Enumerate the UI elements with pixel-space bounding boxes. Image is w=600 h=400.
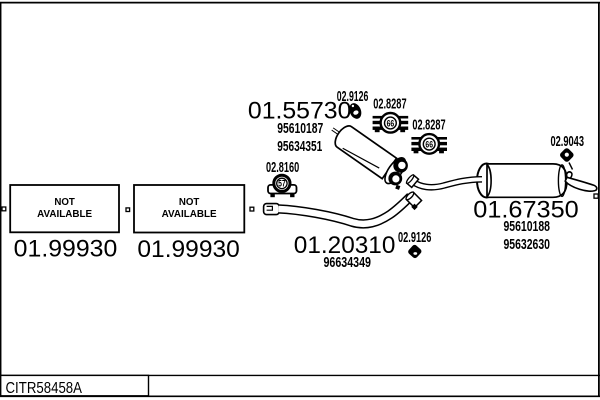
svg-text:02.9126: 02.9126	[337, 88, 369, 105]
svg-text:02.8287: 02.8287	[373, 96, 406, 113]
svg-text:NOT: NOT	[54, 197, 75, 208]
svg-text:57: 57	[278, 179, 286, 189]
svg-text:CITR58458A: CITR58458A	[6, 380, 83, 397]
svg-text:66: 66	[387, 118, 395, 128]
svg-text:96634349: 96634349	[324, 254, 372, 271]
svg-text:66: 66	[425, 139, 433, 149]
svg-text:95610187: 95610187	[277, 120, 323, 137]
svg-text:AVAILABLE: AVAILABLE	[162, 209, 217, 220]
svg-text:95632630: 95632630	[504, 236, 551, 253]
svg-text:AVAILABLE: AVAILABLE	[37, 209, 92, 220]
svg-text:95610188: 95610188	[504, 218, 551, 235]
svg-text:01.99930: 01.99930	[137, 236, 239, 263]
svg-text:02.8287: 02.8287	[412, 117, 445, 134]
svg-text:02.9126: 02.9126	[398, 229, 431, 246]
svg-text:01.99930: 01.99930	[14, 235, 118, 262]
svg-text:02.9043: 02.9043	[551, 133, 585, 150]
svg-text:02.8160: 02.8160	[266, 159, 299, 176]
svg-text:NOT: NOT	[179, 197, 200, 208]
svg-text:95634351: 95634351	[277, 138, 322, 155]
